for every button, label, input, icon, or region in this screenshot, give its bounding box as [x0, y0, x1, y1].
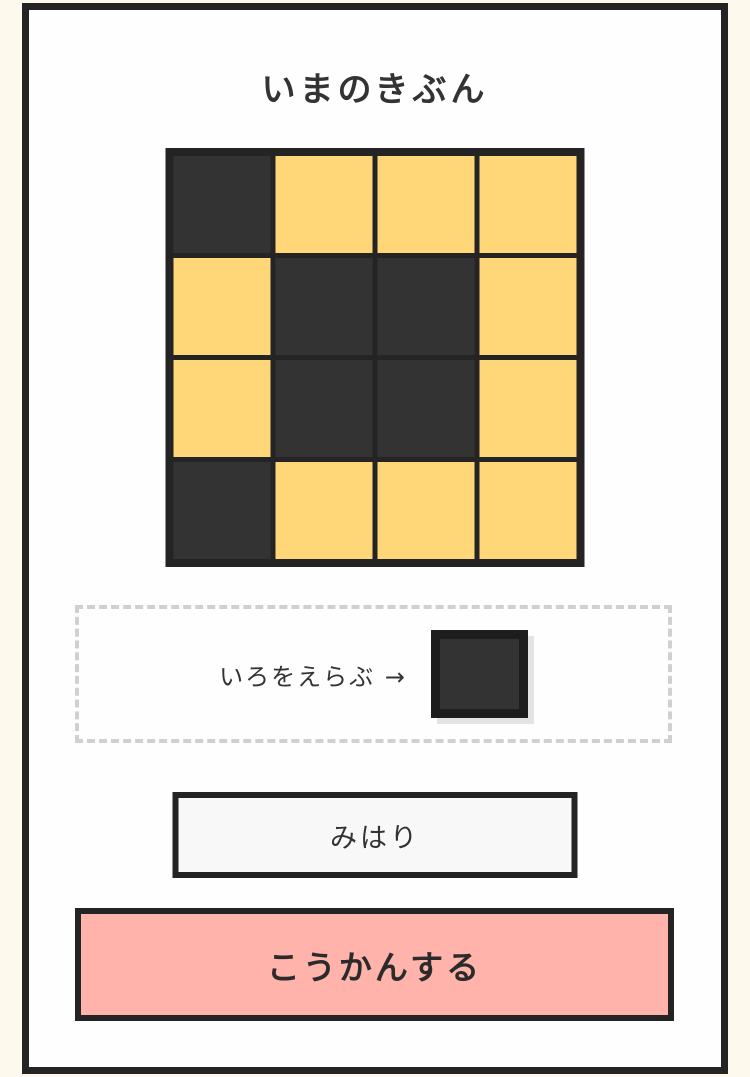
grid-cell-r1c2-dark[interactable]	[378, 258, 475, 355]
grid-cell-r3c1-yellow[interactable]	[276, 462, 373, 559]
grid-cell-r2c1-dark[interactable]	[276, 360, 373, 457]
exchange-button-label: こうかんする	[267, 941, 482, 989]
selected-color-swatch[interactable]	[431, 630, 528, 718]
grid-cell-r3c2-yellow[interactable]	[378, 462, 475, 559]
page-title: いまのきぶん	[29, 62, 721, 111]
grid-cell-r0c0-dark[interactable]	[174, 156, 271, 253]
grid-cell-r1c1-dark[interactable]	[276, 258, 373, 355]
exchange-button[interactable]: こうかんする	[75, 908, 674, 1021]
grid-cell-r1c3-yellow[interactable]	[480, 258, 577, 355]
arrow-right-icon: →	[385, 663, 407, 691]
watch-button[interactable]: みはり	[173, 792, 578, 878]
grid-cell-r1c0-yellow[interactable]	[174, 258, 271, 355]
grid-cell-r0c3-yellow[interactable]	[480, 156, 577, 253]
grid-cell-r3c0-dark[interactable]	[174, 462, 271, 559]
game-card: いまのきぶん いろをえらぶ → みはり こうかんする	[22, 3, 728, 1074]
mood-grid	[166, 148, 585, 567]
grid-cell-r3c3-yellow[interactable]	[480, 462, 577, 559]
game-stage: いまのきぶん いろをえらぶ → みはり こうかんする	[0, 0, 750, 1077]
grid-cell-r2c0-yellow[interactable]	[174, 360, 271, 457]
color-picker-label-text: いろをえらぶ	[219, 663, 375, 691]
watch-button-label: みはり	[330, 816, 420, 855]
color-picker-label: いろをえらぶ →	[219, 657, 407, 692]
grid-cell-r2c2-dark[interactable]	[378, 360, 475, 457]
grid-cell-r0c1-yellow[interactable]	[276, 156, 373, 253]
grid-cell-r0c2-yellow[interactable]	[378, 156, 475, 253]
color-picker-panel: いろをえらぶ →	[75, 605, 672, 743]
grid-cell-r2c3-yellow[interactable]	[480, 360, 577, 457]
